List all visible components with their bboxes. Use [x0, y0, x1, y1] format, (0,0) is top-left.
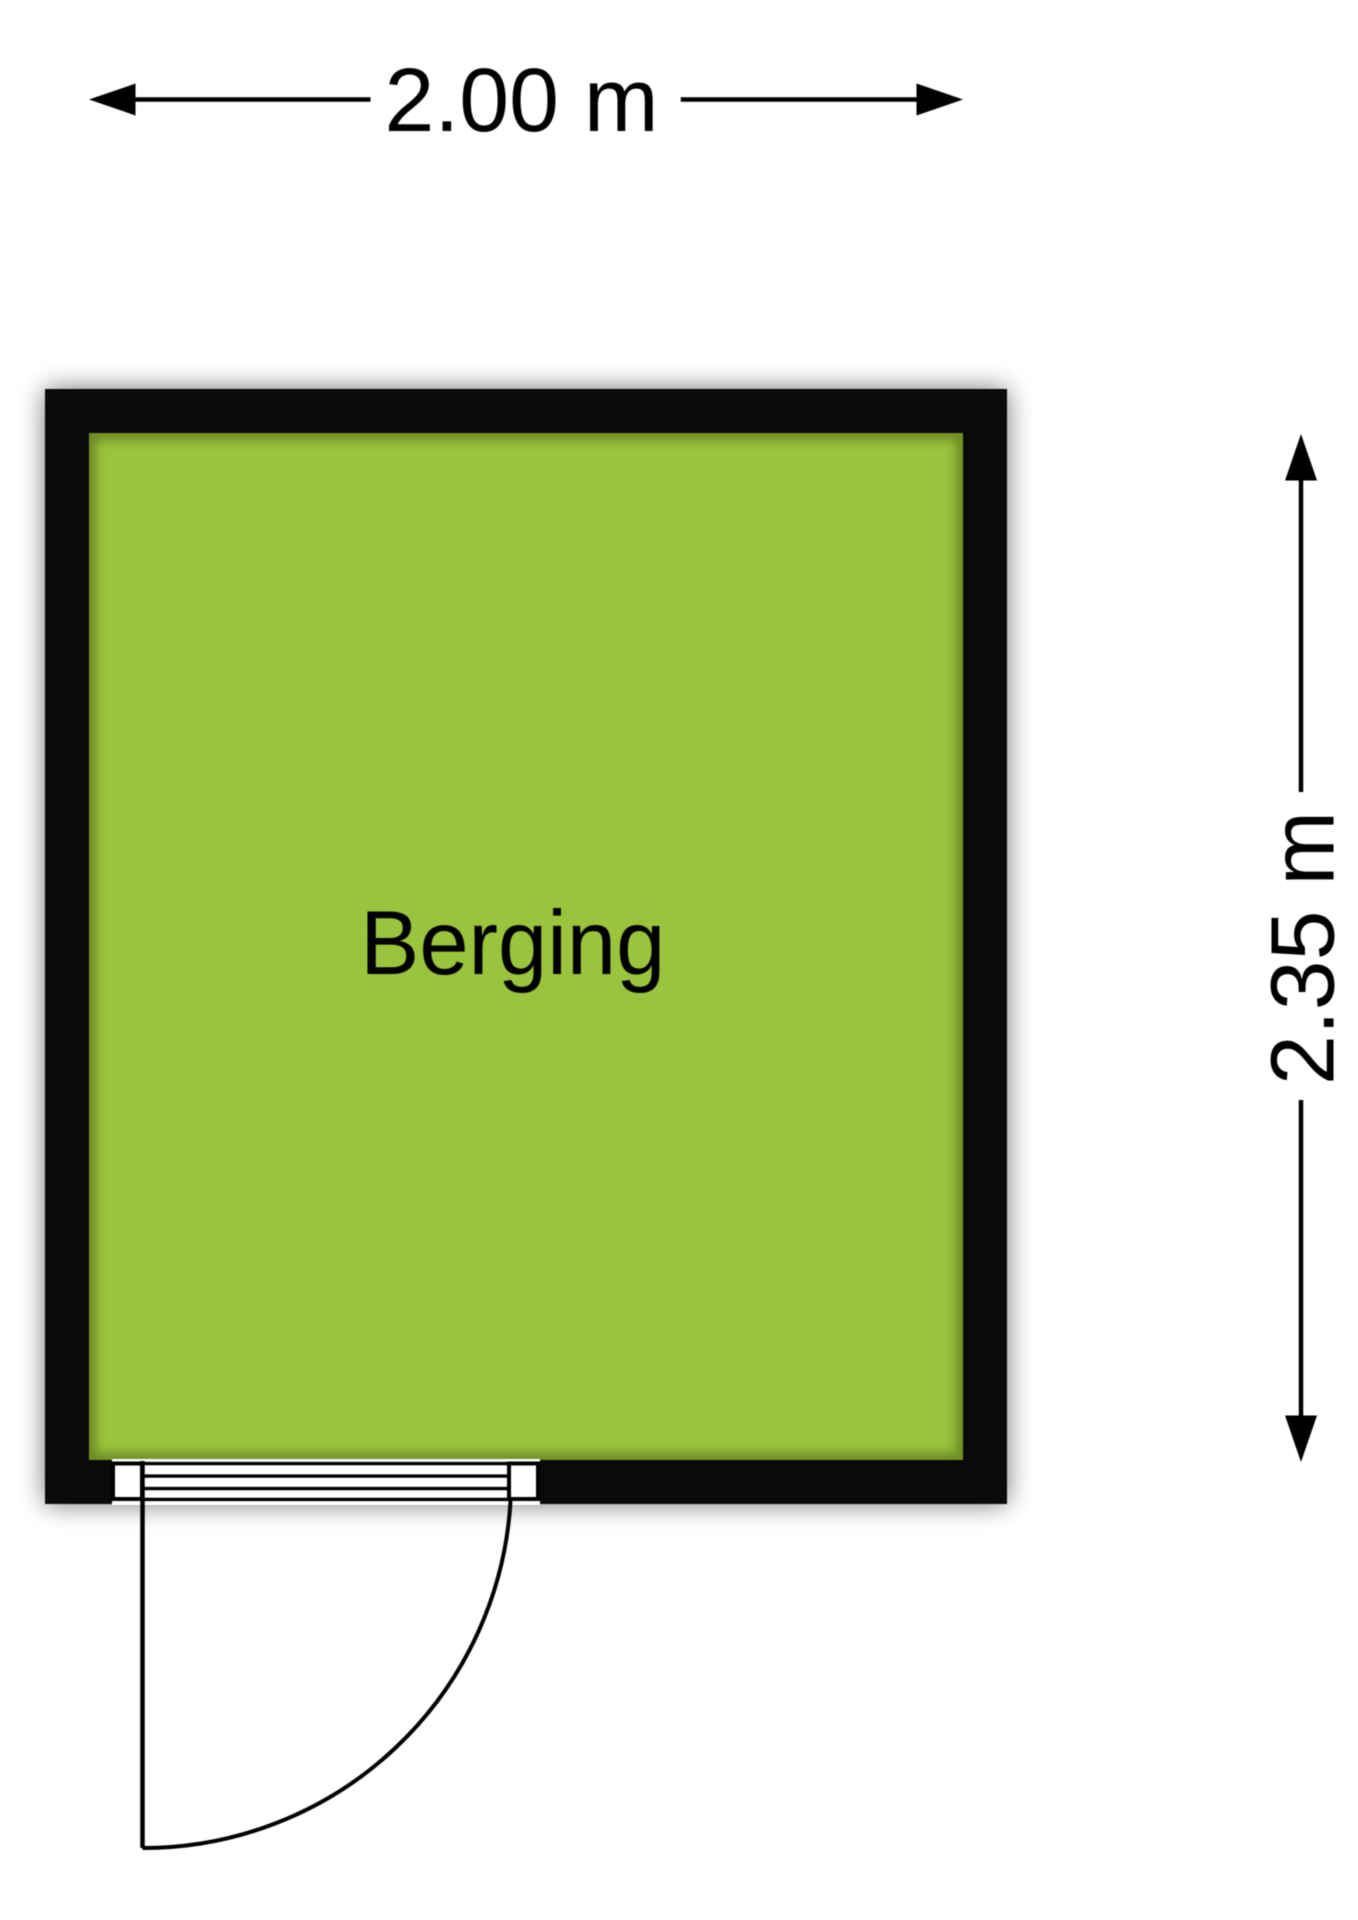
svg-text:2.35 m: 2.35 m — [1254, 811, 1354, 1085]
svg-text:Berging: Berging — [360, 893, 665, 994]
svg-text:2.00 m: 2.00 m — [385, 51, 659, 151]
